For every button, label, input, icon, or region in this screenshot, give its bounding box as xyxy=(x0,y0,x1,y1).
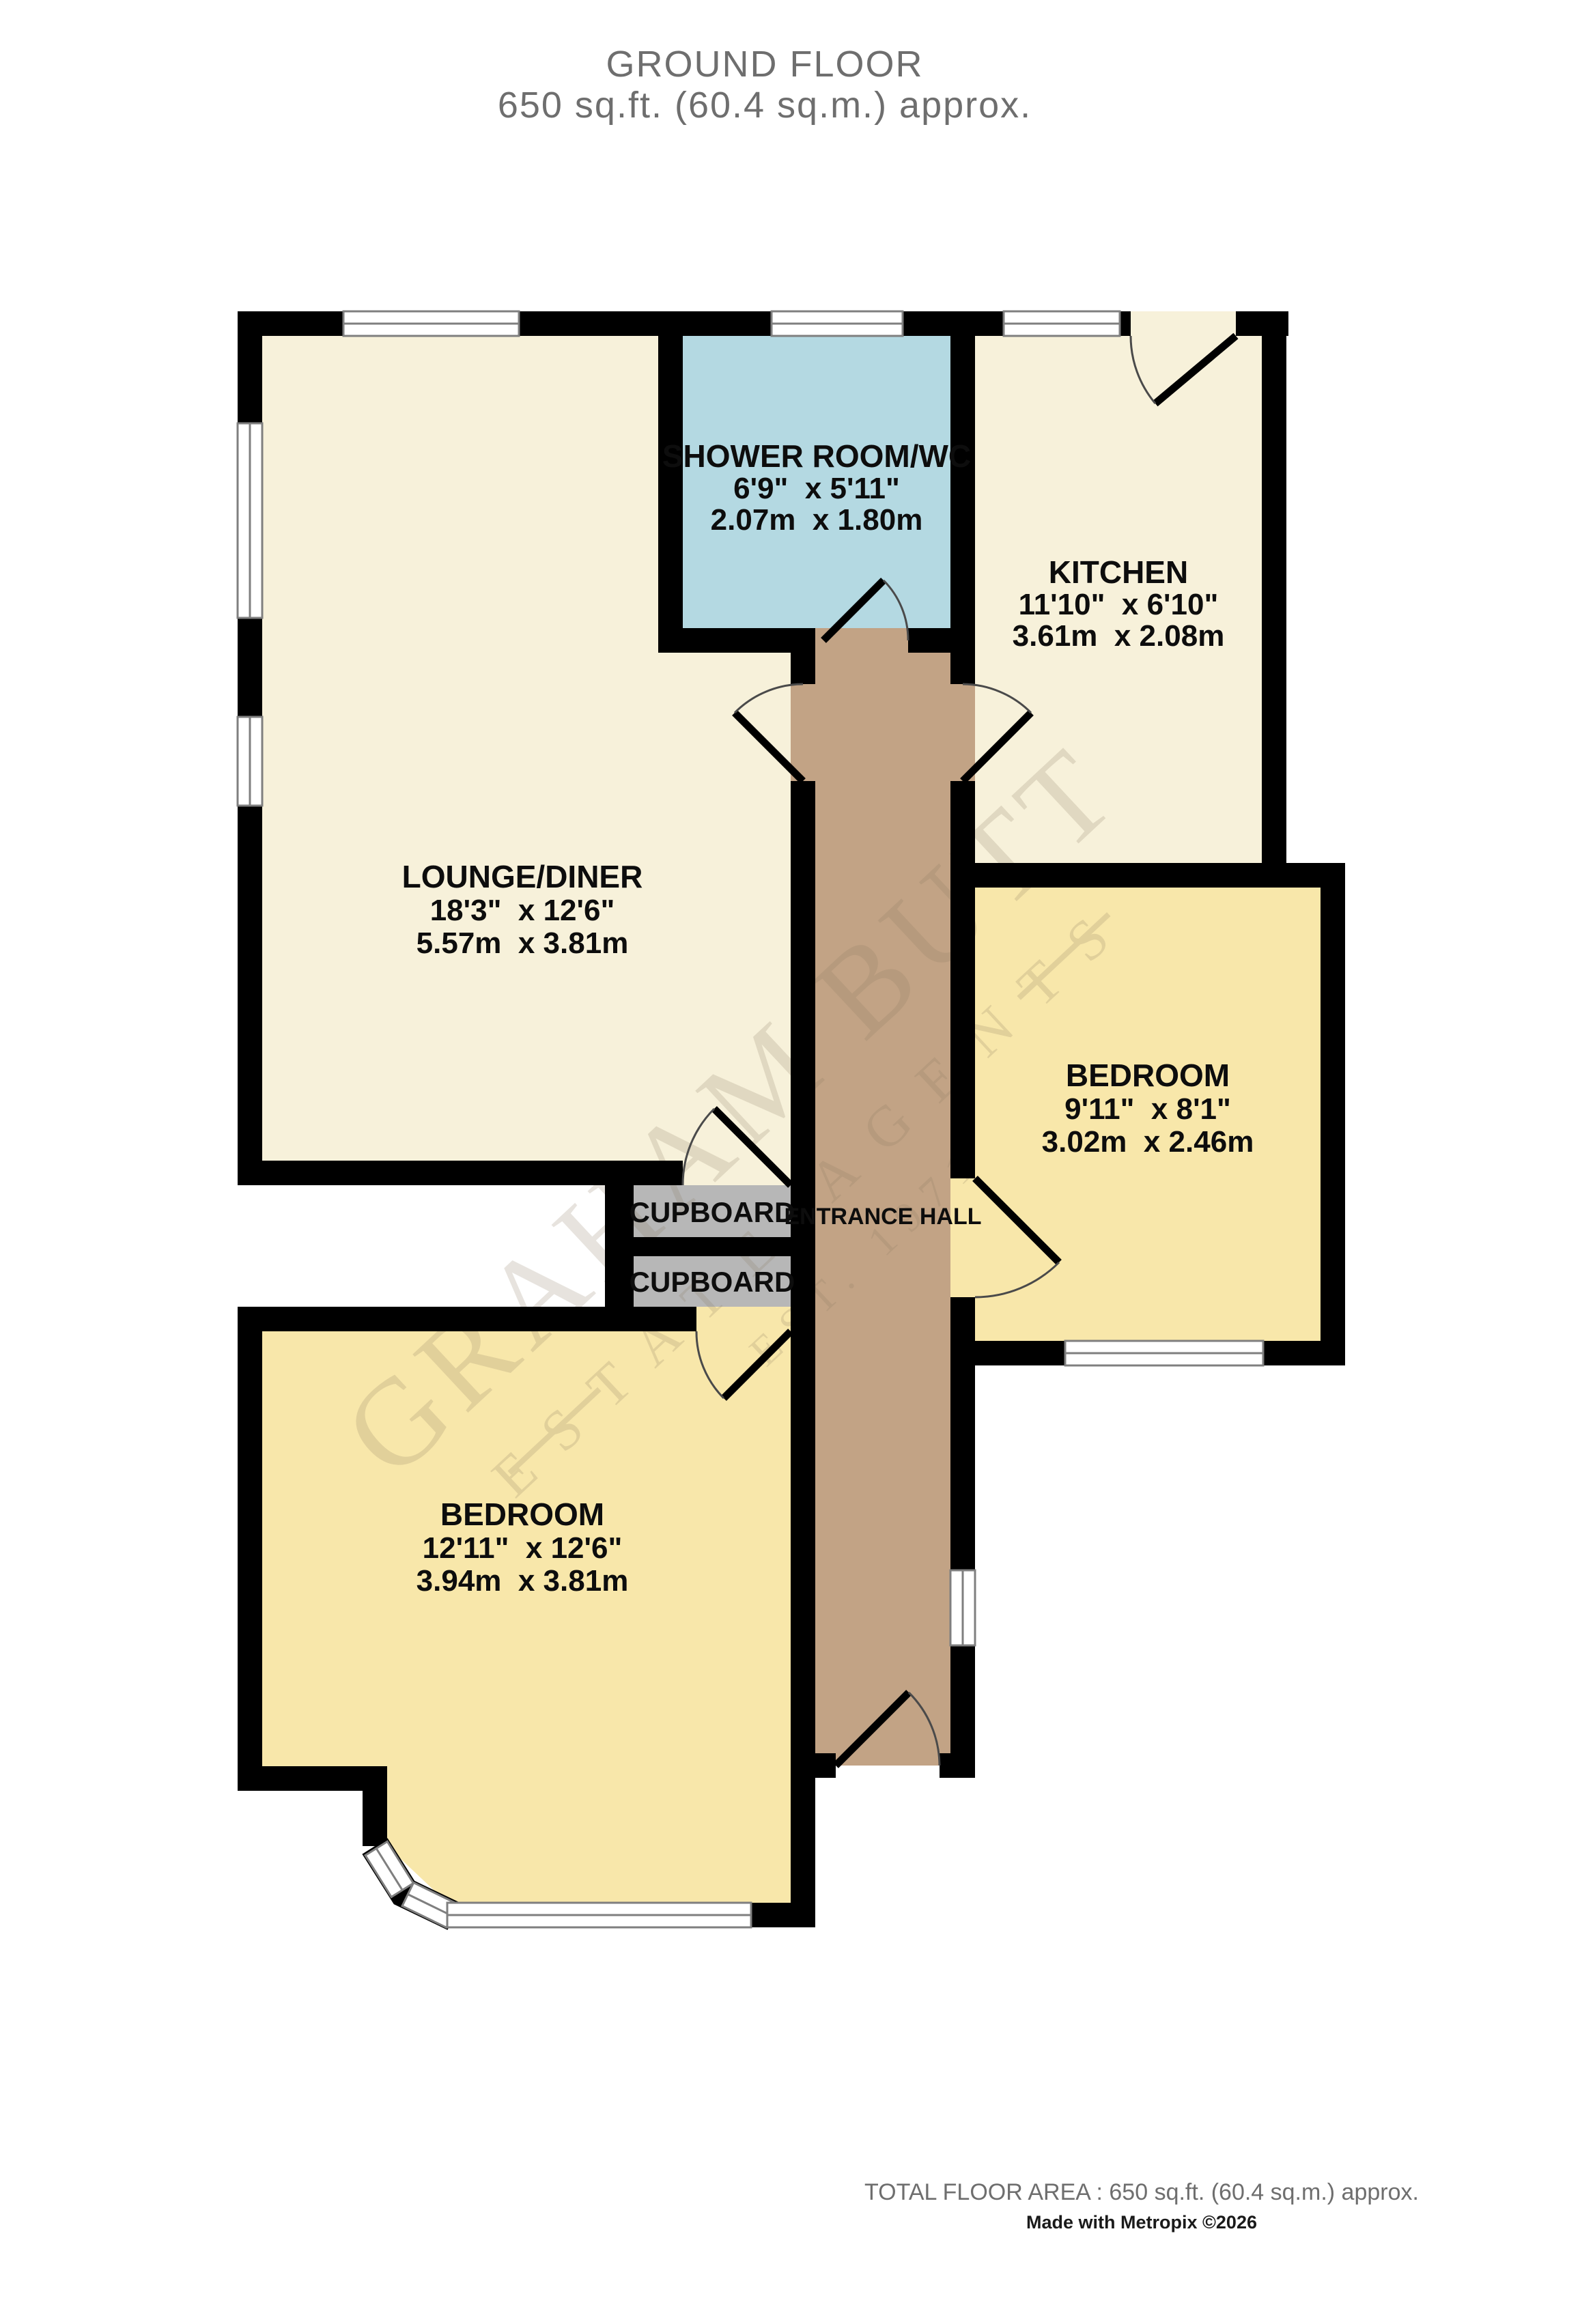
wall-bedroom-bottom-left-lower xyxy=(363,1791,387,1846)
wall-bedroom-bottom-left xyxy=(238,1307,262,1791)
wall-shower-bottom-2 xyxy=(908,628,950,653)
svg-text:18'3" x 12'6": 18'3" x 12'6" xyxy=(430,894,615,927)
svg-text:3.94m x 3.81m: 3.94m x 3.81m xyxy=(417,1564,629,1598)
wall-left-3 xyxy=(238,806,262,1185)
floorplan-canvas: GROUND FLOOR 650 sq.ft. (60.4 sq.m.) app… xyxy=(0,0,1595,2324)
window-bedroom-bottom-south xyxy=(447,1903,751,1927)
wall-bedroom-bottom-top xyxy=(238,1307,696,1331)
wall-top-4 xyxy=(1120,311,1131,336)
window-lounge-left-lower xyxy=(238,717,262,806)
svg-text:BEDROOM: BEDROOM xyxy=(1066,1058,1230,1093)
window-hall-right xyxy=(950,1570,975,1645)
svg-text:3.61m x 2.08m: 3.61m x 2.08m xyxy=(1013,619,1225,653)
wall-shower-left xyxy=(658,336,683,653)
window-lounge-top xyxy=(343,311,519,336)
wall-cupboard-mid xyxy=(605,1237,791,1256)
wall-top-2 xyxy=(519,311,772,336)
label-cupboard-top: CUPBOARD xyxy=(630,1196,795,1228)
window-kitchen-top xyxy=(1004,311,1120,336)
wall-bedroom-bottom-south xyxy=(751,1903,815,1927)
svg-text:LOUNGE/DINER: LOUNGE/DINER xyxy=(402,859,643,894)
total-floor-area: TOTAL FLOOR AREA : 650 sq.ft. (60.4 sq.m… xyxy=(864,2179,1419,2205)
wall-left-1 xyxy=(238,311,262,423)
floorplan-page: GROUND FLOOR 650 sq.ft. (60.4 sq.m.) app… xyxy=(0,0,1595,2324)
window-bedroom-right-bottom xyxy=(1065,1341,1263,1365)
svg-text:9'11" x 8'1": 9'11" x 8'1" xyxy=(1064,1092,1231,1126)
window-shower-top xyxy=(772,311,903,336)
wall-hall-left-1 xyxy=(791,653,815,684)
wall-hall-right-3 xyxy=(950,1297,975,1570)
label-cupboard-bottom: CUPBOARD xyxy=(630,1266,795,1298)
metropix-credit: Made with Metropix ©2026 xyxy=(1026,2212,1257,2233)
wall-front-door-stub-right xyxy=(940,1753,975,1778)
wall-top-3 xyxy=(903,311,1004,336)
wall-hall-left-2 xyxy=(791,781,815,1927)
wall-bedroom-bottom-step xyxy=(238,1766,387,1791)
gap-kitchen-entry xyxy=(1131,311,1236,336)
label-bedroom-bottom: BEDROOM 12'11" x 12'6" 3.94m x 3.81m xyxy=(417,1497,629,1598)
label-entrance-hall: ENTRANCE HALL xyxy=(785,1204,982,1230)
wall-hall-right-1 xyxy=(950,336,975,684)
svg-text:BEDROOM: BEDROOM xyxy=(440,1497,604,1532)
svg-text:2.07m x 1.80m: 2.07m x 1.80m xyxy=(711,503,923,537)
wall-kitchen-bottom xyxy=(950,863,1345,888)
svg-text:12'11" x 12'6": 12'11" x 12'6" xyxy=(423,1531,623,1565)
label-bedroom-right: BEDROOM 9'11" x 8'1" 3.02m x 2.46m xyxy=(1042,1058,1254,1159)
page-subtitle: 650 sq.ft. (60.4 sq.m.) approx. xyxy=(498,85,1032,126)
wall-shower-bottom-1 xyxy=(658,628,815,653)
wall-left-2 xyxy=(238,618,262,717)
svg-text:6'9" x 5'11": 6'9" x 5'11" xyxy=(733,472,900,505)
wall-hall-right-2 xyxy=(950,781,975,1178)
wall-bedroom-right-bottom-2 xyxy=(1263,1341,1345,1365)
label-lounge: LOUNGE/DINER 18'3" x 12'6" 5.57m x 3.81m xyxy=(402,859,643,960)
svg-text:KITCHEN: KITCHEN xyxy=(1049,554,1188,590)
wall-front-door-stub-left xyxy=(815,1753,836,1778)
svg-text:5.57m x 3.81m: 5.57m x 3.81m xyxy=(417,926,629,960)
footer: TOTAL FLOOR AREA : 650 sq.ft. (60.4 sq.m… xyxy=(864,2179,1419,2233)
svg-text:11'10" x 6'10": 11'10" x 6'10" xyxy=(1019,588,1219,621)
window-lounge-left-upper xyxy=(238,423,262,618)
page-title: GROUND FLOOR xyxy=(606,44,923,85)
gap-hall-left-door xyxy=(791,684,815,781)
wall-kitchen-right xyxy=(1262,311,1286,888)
wall-bedroom-right-east xyxy=(1321,863,1345,1365)
wall-bedroom-right-bottom-1 xyxy=(975,1341,1065,1365)
header: GROUND FLOOR 650 sq.ft. (60.4 sq.m.) app… xyxy=(498,44,1032,126)
gap-hall-right-door xyxy=(950,684,975,781)
svg-text:3.02m x 2.46m: 3.02m x 2.46m xyxy=(1042,1125,1254,1159)
svg-text:SHOWER ROOM/WC: SHOWER ROOM/WC xyxy=(662,438,971,474)
